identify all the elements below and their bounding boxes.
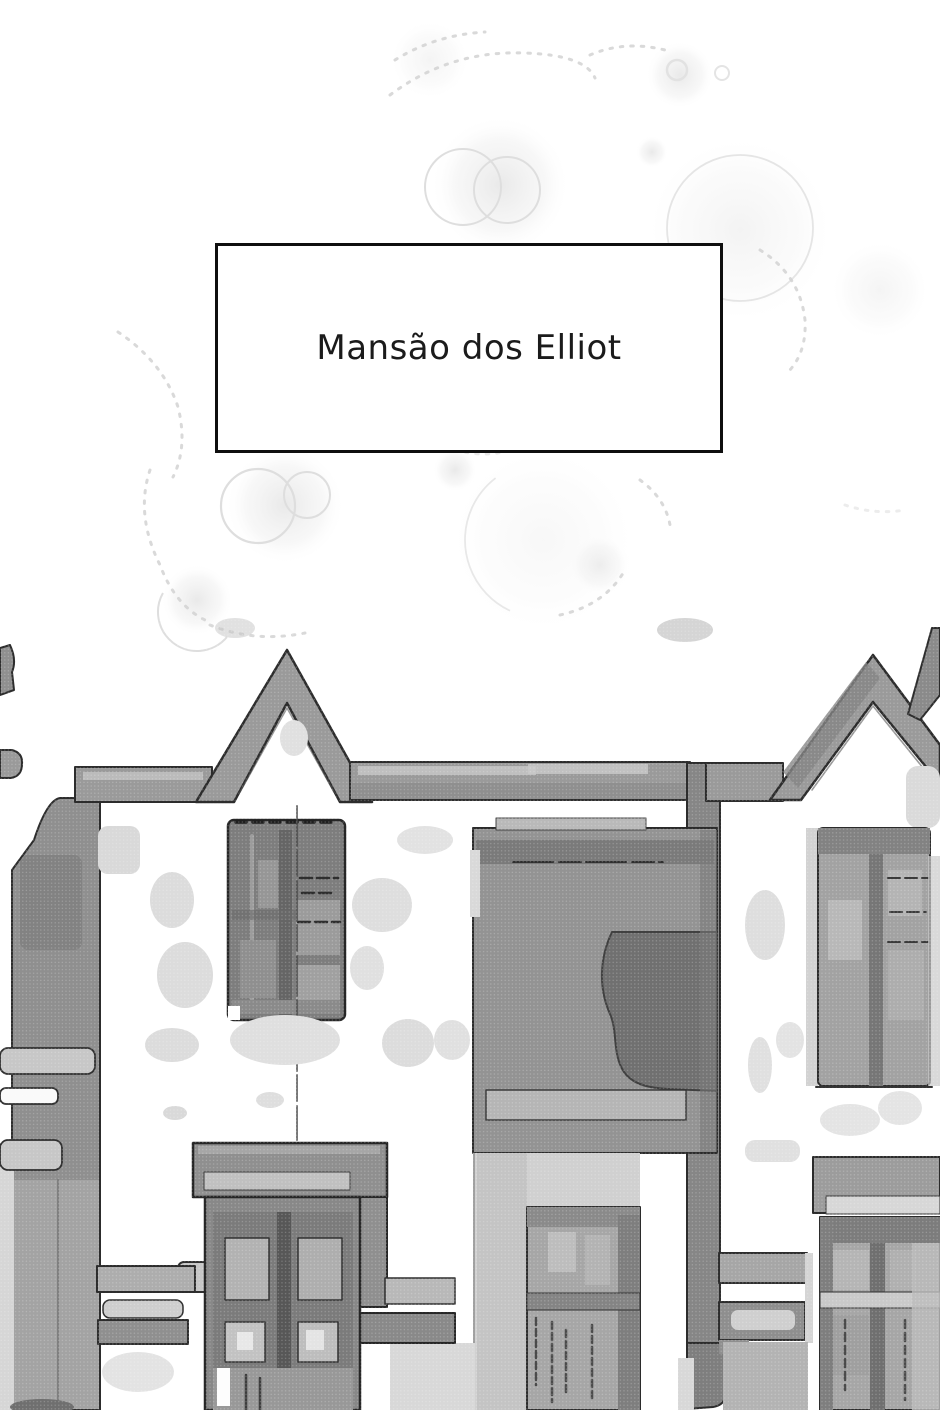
comic-page: Mansão dos Elliot	[0, 0, 940, 1410]
mansion-illustration	[0, 0, 940, 1410]
caption-text: Mansão dos Elliot	[316, 328, 621, 368]
halftone-overlay	[0, 615, 940, 1410]
caption-box: Mansão dos Elliot	[215, 243, 723, 453]
